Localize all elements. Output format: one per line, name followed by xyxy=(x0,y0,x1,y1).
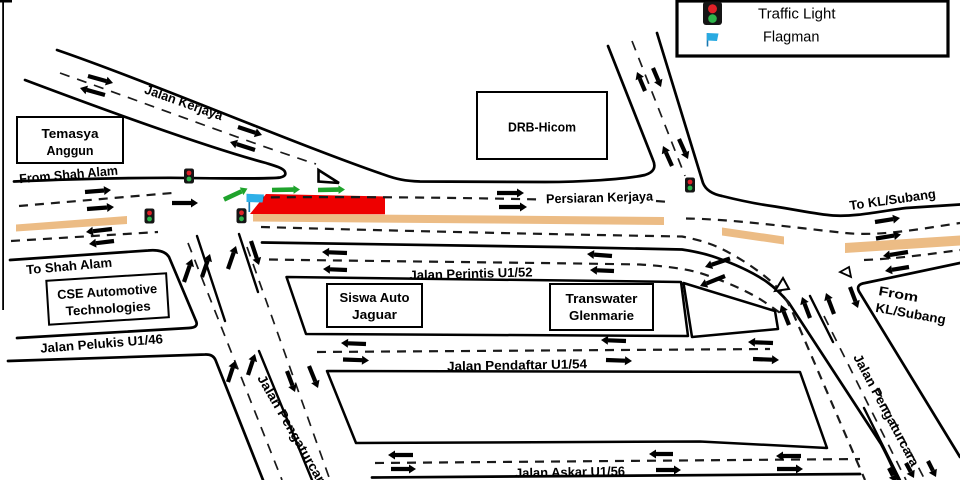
svg-text:Jalan Askar U1/56: Jalan Askar U1/56 xyxy=(515,464,625,480)
svg-text:Traffic Light: Traffic Light xyxy=(758,6,836,23)
svg-text:Jaguar: Jaguar xyxy=(352,307,397,322)
svg-text:Siswa Auto: Siswa Auto xyxy=(340,290,410,305)
svg-text:Anggun: Anggun xyxy=(47,143,94,158)
svg-text:DRB-Hicom: DRB-Hicom xyxy=(508,120,576,135)
svg-text:Temasya: Temasya xyxy=(42,126,100,141)
svg-text:Transwater: Transwater xyxy=(566,291,638,306)
svg-text:Jalan Pendaftar U1/54: Jalan Pendaftar U1/54 xyxy=(447,356,588,373)
svg-text:Persiaran Kerjaya: Persiaran Kerjaya xyxy=(546,189,654,207)
svg-text:Glenmarie: Glenmarie xyxy=(569,308,634,323)
svg-text:Flagman: Flagman xyxy=(763,30,819,46)
